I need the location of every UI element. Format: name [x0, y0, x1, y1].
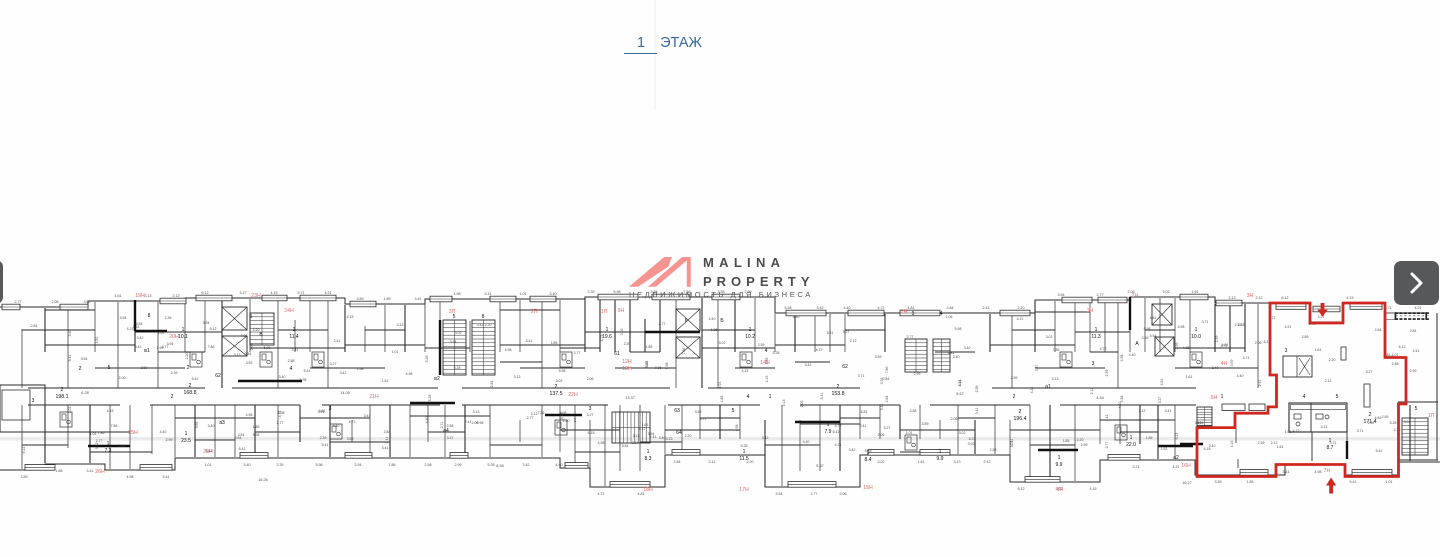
svg-text:2.12: 2.12 [1271, 441, 1278, 445]
svg-text:6.12: 6.12 [210, 327, 217, 331]
svg-text:7.86: 7.86 [655, 366, 662, 370]
svg-text:1: 1 [827, 422, 830, 428]
svg-text:3.02: 3.02 [1404, 420, 1411, 424]
svg-text:6.12: 6.12 [1282, 296, 1289, 300]
svg-text:8.58: 8.58 [496, 464, 503, 468]
svg-text:4.21: 4.21 [835, 443, 842, 447]
svg-text:2.06: 2.06 [800, 401, 804, 408]
svg-text:4.72: 4.72 [598, 492, 605, 496]
svg-text:2.84: 2.84 [1410, 329, 1417, 333]
svg-text:4.81: 4.81 [908, 306, 915, 310]
svg-text:1.61: 1.61 [133, 325, 140, 329]
svg-text:1: 1 [743, 449, 746, 455]
svg-text:1: 1 [606, 327, 609, 333]
svg-text:2.58: 2.58 [1120, 396, 1124, 403]
svg-text:2.39: 2.39 [320, 436, 327, 440]
svg-text:2.41: 2.41 [709, 460, 716, 464]
svg-text:9.9: 9.9 [937, 456, 944, 462]
svg-text:3.40: 3.40 [550, 292, 557, 296]
svg-text:2.06: 2.06 [840, 492, 847, 496]
svg-text:4.81: 4.81 [319, 409, 326, 413]
svg-text:2.58: 2.58 [425, 463, 432, 467]
svg-text:2.20: 2.20 [185, 353, 189, 360]
svg-text:6.12: 6.12 [202, 291, 209, 295]
svg-text:2.41: 2.41 [1258, 380, 1262, 387]
svg-text:4.15: 4.15 [765, 376, 769, 383]
svg-text:4.98: 4.98 [735, 425, 739, 432]
svg-text:3.40: 3.40 [279, 375, 286, 379]
svg-text:2.84: 2.84 [235, 436, 242, 440]
svg-text:6.12: 6.12 [639, 427, 646, 431]
svg-text:14.06: 14.06 [340, 391, 350, 395]
svg-text:5.28: 5.28 [1390, 421, 1397, 425]
svg-text:3.02: 3.02 [455, 331, 462, 335]
svg-text:2.58: 2.58 [990, 448, 997, 452]
svg-text:4.21: 4.21 [1415, 306, 1422, 310]
svg-text:4.40: 4.40 [160, 430, 167, 434]
svg-text:4.98: 4.98 [127, 475, 134, 479]
svg-text:2.41: 2.41 [465, 420, 472, 424]
svg-text:1: 1 [939, 449, 942, 455]
svg-text:1: 1 [1221, 394, 1224, 400]
svg-text:3.27: 3.27 [884, 426, 891, 430]
svg-text:1.85: 1.85 [1146, 436, 1153, 440]
svg-text:4.72: 4.72 [349, 420, 356, 424]
svg-text:2.58: 2.58 [288, 359, 295, 363]
svg-text:2.06: 2.06 [1128, 290, 1135, 294]
svg-text:1: 1 [182, 327, 185, 333]
svg-text:2.12: 2.12 [1325, 379, 1332, 383]
svg-text:3.02: 3.02 [959, 431, 966, 435]
svg-text:16.26: 16.26 [258, 478, 268, 482]
svg-text:4.81: 4.81 [1222, 343, 1229, 347]
svg-text:9: 9 [912, 311, 915, 317]
svg-text:4.15: 4.15 [1090, 487, 1097, 491]
svg-text:2.41: 2.41 [1413, 349, 1420, 353]
svg-text:4.21: 4.21 [1285, 325, 1292, 329]
svg-text:3.59: 3.59 [922, 422, 929, 426]
svg-text:1: 1 [1095, 327, 1098, 333]
svg-text:4.98: 4.98 [246, 413, 253, 417]
svg-text:5.41: 5.41 [1350, 480, 1357, 484]
svg-text:12Н: 12Н [622, 359, 632, 365]
svg-text:4.40: 4.40 [709, 317, 716, 321]
svg-text:2: 2 [837, 384, 840, 390]
svg-text:3.41: 3.41 [975, 408, 979, 415]
svg-text:3.27: 3.27 [240, 291, 247, 295]
svg-text:2: 2 [1013, 394, 1016, 400]
svg-text:10.0: 10.0 [1191, 334, 1201, 340]
svg-text:3.02: 3.02 [84, 300, 91, 304]
svg-text:16Н: 16Н [1181, 463, 1191, 469]
svg-text:1.01: 1.01 [1285, 430, 1292, 434]
svg-text:4.81: 4.81 [861, 410, 868, 414]
svg-text:3Н: 3Н [1247, 293, 1254, 299]
svg-text:5.28: 5.28 [425, 356, 429, 363]
svg-text:2.77: 2.77 [659, 322, 666, 326]
svg-text:3.42: 3.42 [1105, 415, 1109, 422]
svg-text:2.06: 2.06 [878, 433, 885, 437]
svg-text:2.06: 2.06 [52, 300, 59, 304]
svg-text:2.84: 2.84 [885, 396, 889, 403]
svg-text:137.5: 137.5 [550, 391, 563, 397]
svg-text:4.21: 4.21 [1030, 387, 1034, 394]
svg-text:3.02: 3.02 [556, 379, 563, 383]
svg-text:4.72: 4.72 [600, 335, 604, 342]
svg-text:5.67: 5.67 [816, 464, 823, 468]
svg-text:1.85: 1.85 [711, 328, 718, 332]
svg-text:1.85: 1.85 [646, 345, 653, 349]
svg-text:6.12: 6.12 [1175, 433, 1179, 440]
svg-text:1П: 1П [1428, 413, 1435, 419]
svg-text:2: 2 [1019, 409, 1022, 415]
svg-text:1: 1 [574, 418, 577, 424]
svg-text:7Н: 7Н [1324, 468, 1331, 474]
svg-text:4.98: 4.98 [454, 292, 461, 296]
svg-text:2.84: 2.84 [31, 324, 38, 328]
svg-text:3.94: 3.94 [120, 316, 127, 320]
svg-text:7.86: 7.86 [538, 411, 545, 415]
svg-text:2.77: 2.77 [277, 421, 284, 425]
svg-text:5.28: 5.28 [741, 444, 748, 448]
svg-text:1.61: 1.61 [918, 460, 925, 464]
svg-text:2.39: 2.39 [165, 316, 172, 320]
svg-text:3: 3 [1285, 348, 1288, 354]
svg-text:2.39: 2.39 [171, 371, 178, 375]
svg-text:5.28: 5.28 [865, 449, 872, 453]
svg-text:2.84: 2.84 [1375, 328, 1382, 332]
svg-text:5.28: 5.28 [785, 306, 792, 310]
svg-text:1.85: 1.85 [1063, 439, 1070, 443]
svg-text:3.42: 3.42 [137, 336, 144, 340]
svg-text:4.15: 4.15 [1204, 447, 1211, 451]
svg-text:1.85: 1.85 [56, 469, 63, 473]
svg-text:1: 1 [293, 327, 296, 333]
svg-text:3.71: 3.71 [1133, 465, 1140, 469]
svg-text:4.72: 4.72 [1293, 429, 1300, 433]
svg-text:1.85: 1.85 [720, 396, 724, 403]
svg-text:2.84: 2.84 [384, 430, 391, 434]
svg-text:1: 1 [749, 327, 752, 333]
svg-text:3.13: 3.13 [666, 437, 673, 441]
svg-text:21Н: 21Н [369, 394, 379, 400]
svg-text:1.85: 1.85 [253, 425, 260, 429]
svg-text:3.13: 3.13 [1229, 296, 1236, 300]
svg-text:11.4: 11.4 [289, 334, 299, 340]
svg-text:23Н: 23Н [251, 293, 261, 299]
svg-text:153.8: 153.8 [832, 391, 845, 397]
svg-text:2.12: 2.12 [1256, 296, 1263, 300]
svg-text:6.12: 6.12 [206, 449, 213, 453]
svg-text:1: 1 [1130, 435, 1133, 441]
svg-text:13Н: 13Н [622, 366, 632, 372]
svg-text:5.41: 5.41 [192, 377, 199, 381]
svg-text:4.21: 4.21 [325, 291, 332, 295]
svg-text:3.54: 3.54 [1058, 293, 1065, 297]
svg-text:2.58: 2.58 [357, 367, 364, 371]
svg-text:4.81: 4.81 [1375, 416, 1382, 420]
svg-text:4.15: 4.15 [271, 291, 278, 295]
svg-text:7.86: 7.86 [111, 424, 118, 428]
svg-text:2.77: 2.77 [1097, 293, 1104, 297]
svg-text:2.58: 2.58 [447, 424, 454, 428]
svg-text:2.06: 2.06 [1255, 341, 1262, 345]
svg-text:3.59: 3.59 [1215, 480, 1222, 484]
svg-text:3.59: 3.59 [1230, 360, 1234, 367]
svg-text:B: B [259, 332, 263, 338]
svg-text:3.13: 3.13 [633, 434, 640, 438]
svg-text:2.39: 2.39 [588, 290, 595, 294]
svg-text:2.12: 2.12 [984, 460, 991, 464]
svg-text:1: 1 [1195, 327, 1198, 333]
svg-text:8.3: 8.3 [645, 456, 652, 462]
svg-text:3.59: 3.59 [347, 437, 354, 441]
svg-text:7.86: 7.86 [389, 463, 396, 467]
svg-text:a4: a4 [443, 428, 449, 434]
svg-text:4.40: 4.40 [1118, 402, 1122, 409]
svg-text:196.4: 196.4 [1014, 416, 1027, 422]
svg-text:3.13: 3.13 [514, 375, 521, 379]
svg-text:62: 62 [842, 364, 848, 370]
svg-text:3.40: 3.40 [659, 436, 666, 440]
svg-text:3.71: 3.71 [1243, 356, 1250, 360]
svg-text:16.27: 16.27 [1182, 481, 1192, 485]
svg-text:5.28: 5.28 [264, 346, 271, 350]
svg-text:5: 5 [250, 314, 253, 320]
svg-text:в2: в2 [434, 376, 440, 382]
svg-text:2.20: 2.20 [624, 342, 631, 346]
svg-text:3.59: 3.59 [246, 361, 253, 365]
svg-text:4.81: 4.81 [1160, 379, 1164, 386]
svg-text:4.21: 4.21 [969, 437, 976, 441]
svg-text:2.12: 2.12 [850, 339, 857, 343]
svg-text:3.02: 3.02 [719, 341, 726, 345]
svg-text:1.61: 1.61 [1277, 445, 1284, 449]
svg-text:5.98: 5.98 [955, 327, 962, 331]
svg-text:2.99: 2.99 [157, 346, 164, 350]
svg-text:2.77: 2.77 [907, 335, 914, 339]
svg-text:1.61: 1.61 [382, 379, 389, 383]
svg-text:3.59: 3.59 [141, 366, 148, 370]
svg-text:4: 4 [765, 348, 768, 354]
svg-text:3.94: 3.94 [355, 463, 362, 467]
svg-text:3.41: 3.41 [364, 414, 371, 418]
svg-text:3.41: 3.41 [1165, 409, 1172, 413]
svg-text:3.41: 3.41 [87, 469, 94, 473]
svg-text:2.41: 2.41 [385, 437, 389, 444]
svg-text:2.12: 2.12 [1368, 421, 1375, 425]
svg-text:4.40: 4.40 [556, 463, 563, 467]
svg-text:3.42: 3.42 [817, 306, 824, 310]
svg-text:2.39: 2.39 [1105, 370, 1109, 377]
svg-text:8: 8 [482, 314, 485, 320]
svg-text:2.20: 2.20 [1018, 306, 1025, 310]
svg-text:2: 2 [189, 383, 192, 389]
svg-text:2.20: 2.20 [253, 328, 260, 332]
svg-text:6: 6 [685, 318, 688, 324]
svg-text:7.86: 7.86 [885, 367, 889, 374]
svg-text:1.01: 1.01 [718, 382, 722, 389]
svg-text:8.67: 8.67 [956, 392, 963, 396]
svg-text:2.20: 2.20 [1077, 438, 1084, 442]
svg-text:7.86: 7.86 [1053, 348, 1060, 352]
svg-text:18Н: 18Н [643, 487, 653, 493]
svg-text:2.99: 2.99 [1011, 376, 1018, 380]
svg-text:3: 3 [32, 398, 35, 404]
svg-text:1П: 1П [601, 309, 608, 315]
svg-text:3.02: 3.02 [968, 442, 975, 446]
svg-text:4.21: 4.21 [1173, 465, 1180, 469]
svg-text:3.42: 3.42 [95, 443, 99, 450]
svg-text:2.06: 2.06 [587, 377, 594, 381]
svg-text:3.94: 3.94 [167, 342, 174, 346]
svg-text:1.85: 1.85 [384, 297, 391, 301]
svg-text:1.01: 1.01 [90, 432, 97, 436]
svg-text:5.41: 5.41 [485, 292, 492, 296]
svg-text:7.86: 7.86 [682, 348, 686, 355]
svg-text:a2: a2 [1173, 455, 1179, 461]
svg-text:4.98: 4.98 [598, 441, 605, 445]
svg-text:4.81: 4.81 [1150, 316, 1157, 320]
svg-text:5.98: 5.98 [665, 363, 669, 370]
svg-text:4: 4 [940, 311, 943, 317]
svg-text:1.01: 1.01 [1386, 480, 1393, 484]
svg-text:4.72: 4.72 [878, 306, 885, 310]
svg-text:3.54: 3.54 [622, 444, 629, 448]
svg-text:4.98: 4.98 [1178, 325, 1185, 329]
svg-text:1.85: 1.85 [551, 341, 558, 345]
svg-text:168.8: 168.8 [184, 390, 197, 396]
svg-text:7.86: 7.86 [208, 345, 215, 349]
svg-text:Б: Б [720, 318, 724, 324]
svg-text:11.3: 11.3 [1091, 334, 1101, 340]
svg-text:3.40: 3.40 [208, 424, 215, 428]
svg-text:4.72: 4.72 [816, 348, 823, 352]
svg-text:1.01: 1.01 [68, 407, 72, 414]
svg-text:2: 2 [187, 365, 190, 371]
svg-text:4.40: 4.40 [793, 315, 800, 319]
svg-text:61: 61 [614, 351, 620, 357]
svg-text:2.77: 2.77 [1105, 442, 1109, 449]
svg-text:3.59: 3.59 [195, 422, 199, 429]
svg-text:5.28: 5.28 [454, 366, 461, 370]
svg-text:7.86: 7.86 [241, 334, 248, 338]
svg-text:2.12: 2.12 [173, 294, 180, 298]
svg-text:25Н: 25Н [128, 430, 138, 436]
svg-text:4.40: 4.40 [1129, 353, 1136, 357]
svg-text:2: 2 [1369, 412, 1372, 418]
svg-text:2: 2 [79, 366, 82, 372]
svg-text:3.41: 3.41 [1283, 470, 1290, 474]
svg-text:2.39: 2.39 [758, 343, 765, 347]
svg-text:4.72: 4.72 [835, 424, 842, 428]
svg-text:3.27: 3.27 [587, 413, 594, 417]
svg-text:3.94: 3.94 [645, 361, 649, 368]
svg-text:4.72: 4.72 [278, 411, 282, 418]
svg-text:4.21: 4.21 [958, 380, 962, 387]
svg-text:2.77: 2.77 [811, 492, 818, 496]
svg-text:3.54: 3.54 [81, 357, 88, 361]
svg-text:63: 63 [674, 408, 680, 414]
svg-text:3.40: 3.40 [953, 355, 960, 359]
svg-text:5.41: 5.41 [239, 447, 246, 451]
svg-text:6.12: 6.12 [1399, 345, 1406, 349]
svg-text:4.98: 4.98 [505, 348, 512, 352]
svg-text:5: 5 [732, 408, 735, 414]
svg-text:3.02: 3.02 [878, 460, 885, 464]
svg-text:3: 3 [1092, 361, 1095, 367]
svg-text:5.98: 5.98 [253, 433, 260, 437]
svg-text:3.42: 3.42 [1195, 421, 1202, 425]
svg-text:2.58: 2.58 [1392, 362, 1399, 366]
svg-text:3П: 3П [449, 309, 456, 315]
svg-text:3.94: 3.94 [203, 321, 210, 325]
svg-text:3.27: 3.27 [330, 362, 337, 366]
svg-text:5: 5 [1415, 406, 1418, 412]
svg-text:5.98: 5.98 [560, 413, 564, 420]
svg-text:4.40: 4.40 [333, 424, 340, 428]
svg-text:5.28: 5.28 [488, 463, 495, 467]
svg-text:2.41: 2.41 [860, 424, 867, 428]
svg-text:2.58: 2.58 [910, 409, 917, 413]
svg-text:5.41: 5.41 [322, 443, 329, 447]
svg-text:4.40: 4.40 [425, 417, 429, 424]
svg-text:A: A [1135, 341, 1139, 347]
svg-text:2.77: 2.77 [15, 300, 22, 304]
svg-text:3.40: 3.40 [68, 330, 72, 337]
svg-text:3.59: 3.59 [695, 410, 702, 414]
svg-text:3: 3 [589, 406, 592, 412]
svg-text:3.13: 3.13 [234, 353, 241, 357]
svg-text:1.01: 1.01 [520, 292, 527, 296]
svg-text:3.40: 3.40 [244, 463, 251, 467]
svg-text:5: 5 [1336, 394, 1339, 400]
svg-text:2: 2 [61, 387, 64, 393]
svg-text:2.39: 2.39 [1142, 336, 1149, 340]
svg-text:1.61: 1.61 [1161, 447, 1168, 451]
svg-text:2.99: 2.99 [166, 438, 173, 442]
svg-text:3.42: 3.42 [849, 448, 856, 452]
svg-text:10.1: 10.1 [178, 334, 188, 340]
svg-text:3.13: 3.13 [473, 410, 480, 414]
svg-text:1.01: 1.01 [158, 331, 165, 335]
svg-text:20Н: 20Н [169, 334, 179, 340]
svg-text:7.86: 7.86 [98, 431, 105, 435]
svg-text:1: 1 [107, 441, 110, 447]
svg-text:5.98: 5.98 [477, 421, 484, 425]
svg-text:1.01: 1.01 [392, 350, 399, 354]
svg-text:2.84: 2.84 [947, 306, 954, 310]
svg-text:2: 2 [555, 384, 558, 390]
svg-text:9Н: 9Н [618, 308, 625, 314]
svg-text:5.41: 5.41 [68, 355, 72, 362]
svg-text:22.0: 22.0 [1126, 442, 1136, 448]
svg-text:6.12: 6.12 [1018, 487, 1025, 491]
svg-text:2.41: 2.41 [650, 435, 657, 439]
svg-text:1.61: 1.61 [1315, 348, 1322, 352]
svg-text:2.20: 2.20 [747, 460, 754, 464]
svg-text:3.41: 3.41 [382, 446, 389, 450]
svg-text:1.61: 1.61 [1186, 375, 1193, 379]
svg-text:3.42: 3.42 [805, 363, 812, 367]
svg-text:4.54: 4.54 [1096, 396, 1103, 400]
svg-text:3.27: 3.27 [1366, 370, 1373, 374]
svg-text:5.28: 5.28 [428, 395, 432, 402]
svg-text:4.81: 4.81 [95, 337, 99, 344]
svg-text:4.15: 4.15 [107, 409, 114, 413]
svg-text:3.71: 3.71 [858, 374, 865, 378]
svg-text:2.84: 2.84 [632, 441, 639, 445]
